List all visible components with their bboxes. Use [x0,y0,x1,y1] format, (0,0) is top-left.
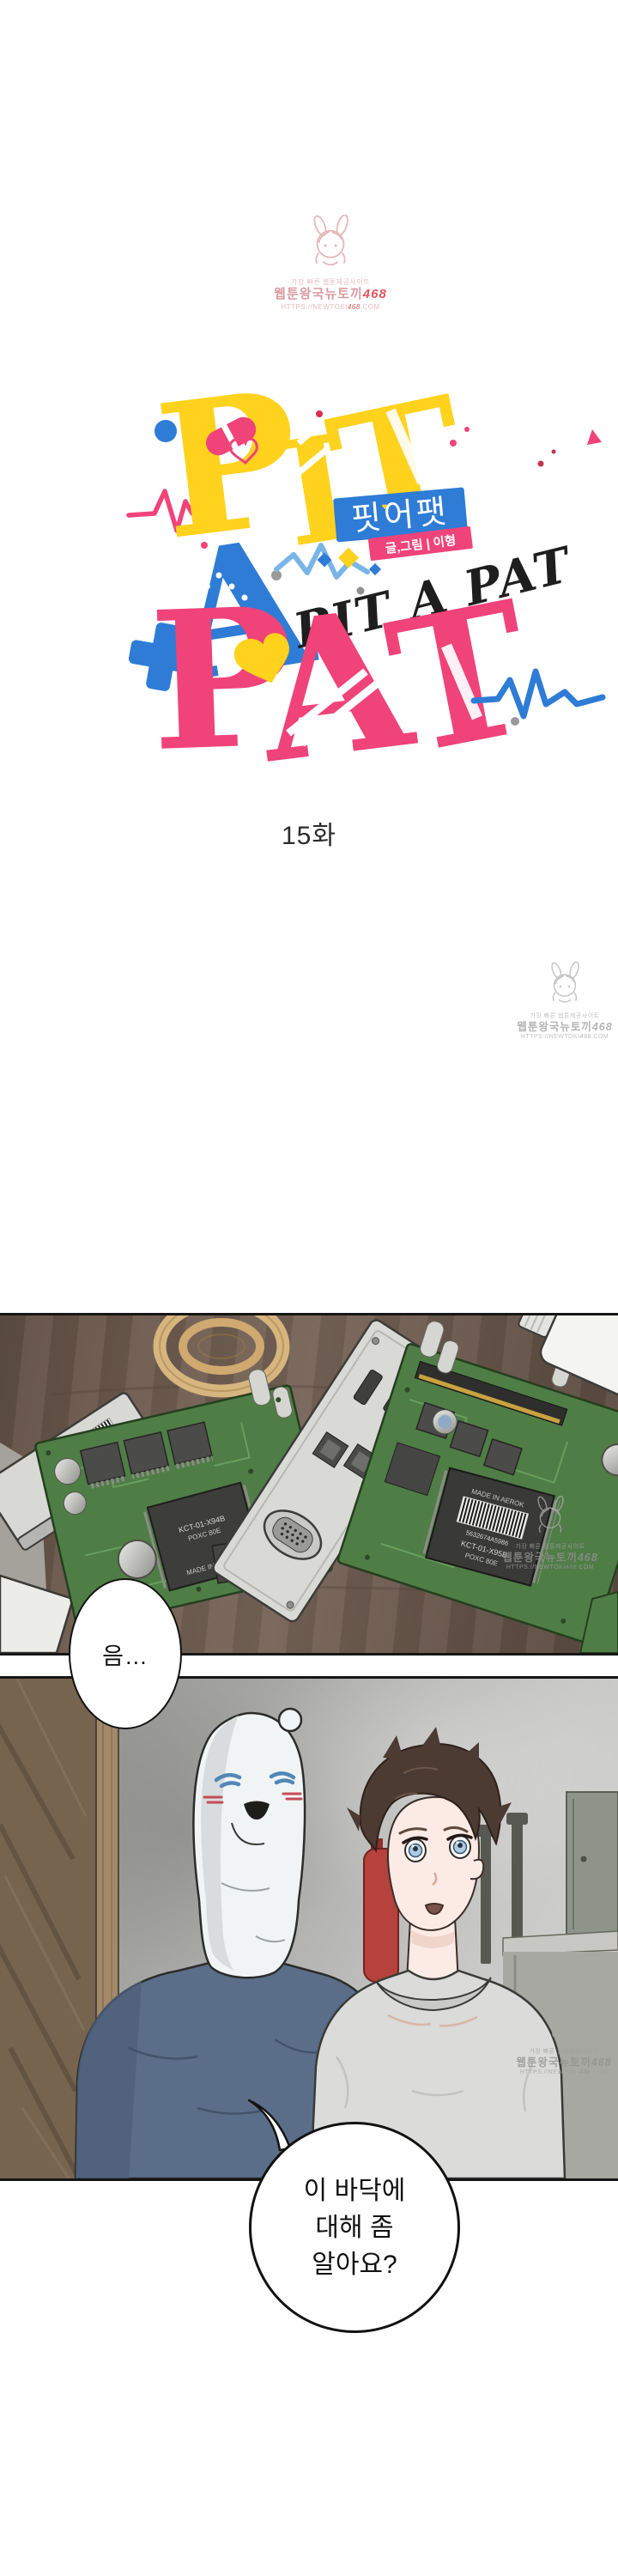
pink-triangle [587,429,602,445]
speech-line-1: 이 바닥에 [304,2172,406,2209]
watermark-url: HTTPS://NEWTOKI468.COM [512,1034,618,1042]
blue-dot [154,420,177,442]
watermark-url: HTTPS://NEWTOKI468.COM [510,2069,618,2077]
speech-line-2: 대해 좀 [304,2209,406,2246]
red-dot [538,461,544,467]
bunny-girl-watermark-icon [532,962,597,1012]
title-word-pat: P A T [124,561,548,764]
metal-cabinet [566,1792,618,1936]
watermark-slogan: 가장 빠른 웹툰제공사이트 [256,278,405,287]
speech-bubble-hmm: 음… [69,1578,182,1729]
episode-number: 15화 [0,814,618,852]
bunny-girl-watermark-icon [534,1999,594,2047]
bear-ear [279,1709,301,1731]
webtoon-page: 가장 빠른 웹툰제공사이트 웹툰왕국뉴토끼468 HTTPS://NEWTOKI… [0,0,618,2576]
watermark-site-name: 웹툰왕국뉴토끼468 [256,287,405,303]
speech-bubble-question: 이 바닥에 대해 좀 알아요? [249,2122,460,2333]
watermark-url: HTTPS://NEWTOKI468.COM [256,303,405,312]
pink-dot [464,427,470,432]
watermark-newtoki-mid: 가장 빠른 웹툰제공사이트 웹툰왕국뉴토끼468 HTTPS://NEWTOKI… [512,962,618,1042]
title-logo: P I T 핏어팻 ♥ [0,361,618,764]
speech-text: 음… [102,1637,148,1671]
watermark-slogan: 가장 빠른 웹툰제공사이트 [510,2049,618,2057]
red-dot [552,450,556,454]
watermark-site-name: 웹툰왕국뉴토끼468 [512,1021,618,1035]
gray-dot [511,717,519,726]
watermark-slogan: 가장 빠른 웹툰제공사이트 [512,1013,618,1021]
watermark-site-name: 웹툰왕국뉴토끼468 [510,2057,618,2070]
comic-panel-characters [0,1676,618,2181]
bunny-girl-watermark-icon [519,1496,581,1542]
white-box-corner [0,1576,73,1653]
watermark-newtoki-panel1: 가장 빠른 웹툰제공사이트 웹툰왕국뉴토끼468 HTTPS://NEWTOKI… [486,1496,615,1572]
watermark-newtoki-top: 가장 빠른 웹툰제공사이트 웹툰왕국뉴토끼468 HTTPS://NEWTOKI… [256,215,405,312]
bunny-girl-watermark-icon [289,215,372,276]
watermark-url: HTTPS://NEWTOKI468.COM [486,1564,615,1572]
badge-heart-icon: ♥ [381,501,388,513]
pink-dot [201,542,208,549]
pink-dot [450,440,457,447]
speech-line-3: 알아요? [304,2246,406,2283]
watermark-site-name: 웹툰왕국뉴토끼468 [486,1552,615,1565]
watermark-slogan: 가장 빠른 웹툰제공사이트 [486,1544,615,1552]
watermark-newtoki-panel2: 가장 빠른 웹툰제공사이트 웹툰왕국뉴토끼468 HTTPS://NEWTOKI… [510,1999,618,2077]
